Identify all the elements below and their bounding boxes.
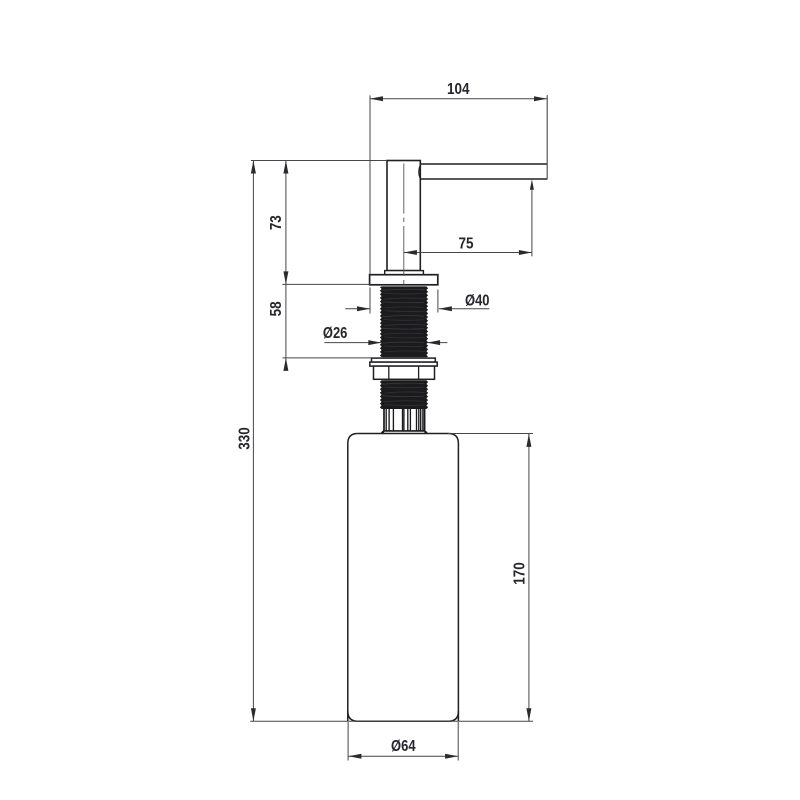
svg-text:104: 104 [447, 81, 470, 98]
svg-text:Ø64: Ø64 [391, 738, 416, 755]
svg-text:73: 73 [268, 215, 285, 230]
svg-text:Ø26: Ø26 [323, 325, 348, 342]
svg-text:75: 75 [459, 236, 474, 253]
svg-text:170: 170 [511, 562, 528, 585]
svg-text:Ø40: Ø40 [465, 292, 490, 309]
svg-text:330: 330 [236, 427, 253, 450]
svg-text:58: 58 [268, 301, 285, 316]
